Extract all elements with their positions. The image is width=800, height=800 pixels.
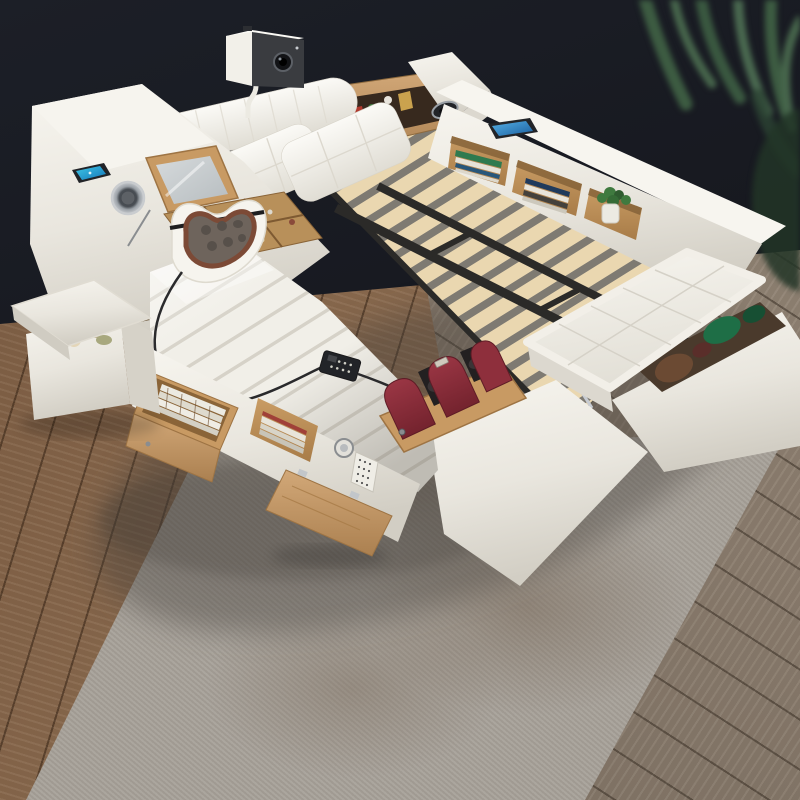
drawer-knob [146, 442, 151, 447]
plant-pot [602, 204, 619, 223]
projector-connector [243, 26, 252, 31]
projector-side [226, 32, 252, 86]
smart-bed-illustration [0, 0, 800, 800]
bedroom-scene [0, 0, 800, 800]
massager-button [399, 429, 405, 435]
speaker [112, 182, 144, 214]
